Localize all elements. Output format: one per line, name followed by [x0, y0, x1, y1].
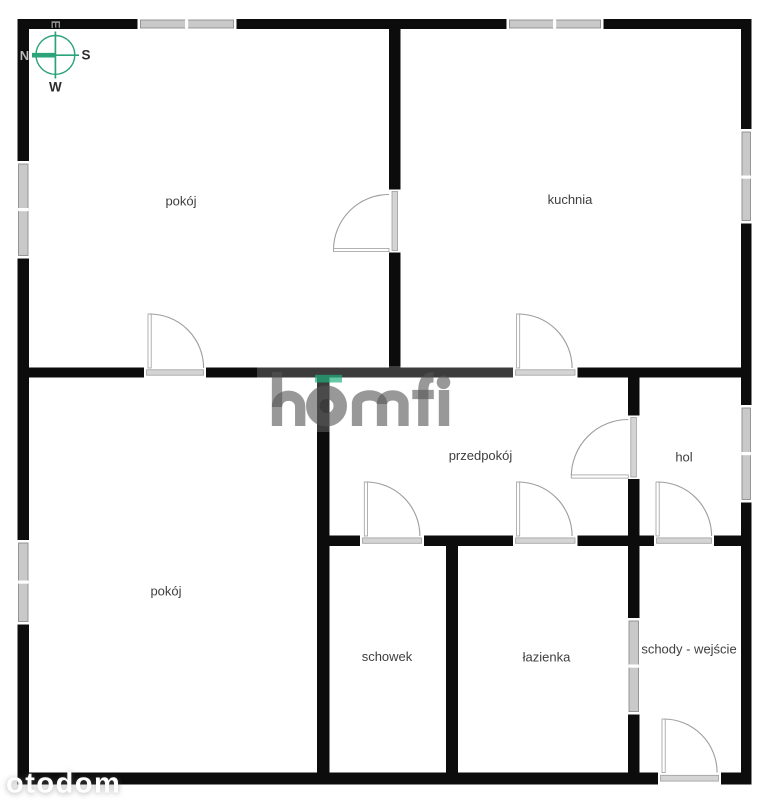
svg-text:pokój: pokój — [165, 194, 196, 209]
svg-text:pokój: pokój — [150, 584, 181, 599]
svg-text:W: W — [49, 80, 62, 95]
svg-text:N: N — [20, 48, 29, 63]
svg-text:S: S — [81, 48, 90, 63]
svg-text:schowek: schowek — [362, 649, 413, 664]
svg-text:kuchnia: kuchnia — [548, 192, 594, 207]
svg-text:otodom: otodom — [6, 768, 121, 800]
svg-text:przedpokój: przedpokój — [449, 448, 513, 463]
svg-text:hol: hol — [675, 450, 692, 465]
svg-text:łazienka: łazienka — [523, 650, 571, 665]
svg-text:schody - wejście: schody - wejście — [641, 642, 736, 657]
svg-text:E: E — [48, 20, 62, 28]
